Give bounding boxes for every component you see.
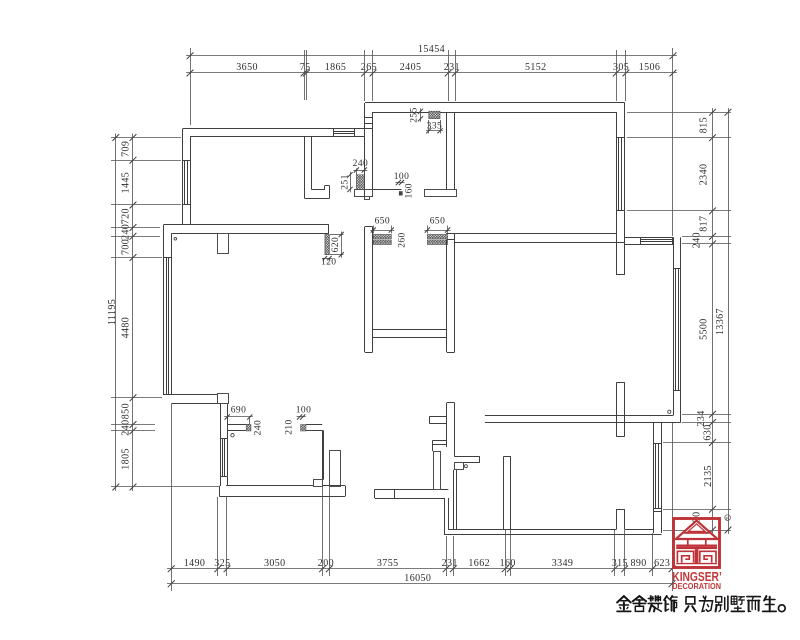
svg-text:DECORATION: DECORATION xyxy=(672,582,721,591)
svg-text:240: 240 xyxy=(121,224,132,240)
svg-text:650: 650 xyxy=(430,217,445,227)
svg-text:1865: 1865 xyxy=(325,62,347,73)
svg-text:850: 850 xyxy=(121,403,132,419)
svg-text:3050: 3050 xyxy=(264,558,286,569)
svg-text:1662: 1662 xyxy=(468,558,490,569)
svg-text:650: 650 xyxy=(375,217,390,227)
svg-text:251: 251 xyxy=(341,174,351,189)
svg-text:16050: 16050 xyxy=(404,573,431,584)
svg-text:1506: 1506 xyxy=(639,62,661,73)
svg-text:210: 210 xyxy=(284,419,294,434)
svg-text:5152: 5152 xyxy=(525,62,547,73)
svg-text:325: 325 xyxy=(214,558,230,569)
svg-text:2340: 2340 xyxy=(699,164,710,186)
svg-text:15454: 15454 xyxy=(418,44,445,55)
svg-text:3650: 3650 xyxy=(236,62,258,73)
svg-text:3349: 3349 xyxy=(552,558,574,569)
svg-text:1490: 1490 xyxy=(184,558,206,569)
svg-text:100: 100 xyxy=(296,406,311,416)
svg-text:240: 240 xyxy=(121,419,132,435)
svg-text:240: 240 xyxy=(254,420,264,435)
svg-text:720: 720 xyxy=(121,208,132,224)
svg-text:160: 160 xyxy=(500,558,516,569)
svg-text:100: 100 xyxy=(394,172,409,182)
svg-text:890: 890 xyxy=(630,558,646,569)
svg-text:255: 255 xyxy=(410,107,420,122)
svg-text:700: 700 xyxy=(121,239,132,255)
svg-text:709: 709 xyxy=(121,141,132,157)
svg-text:3755: 3755 xyxy=(377,558,399,569)
svg-text:1805: 1805 xyxy=(121,448,132,470)
svg-text:231: 231 xyxy=(444,62,460,73)
svg-text:260: 260 xyxy=(397,232,407,247)
svg-text:240: 240 xyxy=(692,232,703,248)
svg-text:815: 815 xyxy=(699,117,710,133)
svg-text:231: 231 xyxy=(442,558,458,569)
svg-text:690: 690 xyxy=(231,406,246,416)
svg-text:160: 160 xyxy=(405,183,415,198)
svg-text:1445: 1445 xyxy=(121,172,132,194)
svg-text:2135: 2135 xyxy=(703,465,714,487)
svg-text:620: 620 xyxy=(331,237,341,252)
svg-text:240: 240 xyxy=(353,159,368,169)
svg-text:623: 623 xyxy=(654,558,670,569)
svg-text:200: 200 xyxy=(318,558,334,569)
svg-text:335: 335 xyxy=(427,121,442,131)
svg-text:817: 817 xyxy=(699,216,710,232)
svg-text:5500: 5500 xyxy=(699,318,710,340)
svg-text:234: 234 xyxy=(696,410,707,426)
svg-text:11195: 11195 xyxy=(107,299,118,325)
svg-text:2405: 2405 xyxy=(400,62,422,73)
svg-text:630: 630 xyxy=(703,424,714,440)
svg-text:13367: 13367 xyxy=(715,308,726,335)
svg-text:4480: 4480 xyxy=(121,317,132,339)
svg-text:305: 305 xyxy=(613,62,629,73)
svg-text:265: 265 xyxy=(361,62,377,73)
svg-text:75: 75 xyxy=(300,62,311,73)
